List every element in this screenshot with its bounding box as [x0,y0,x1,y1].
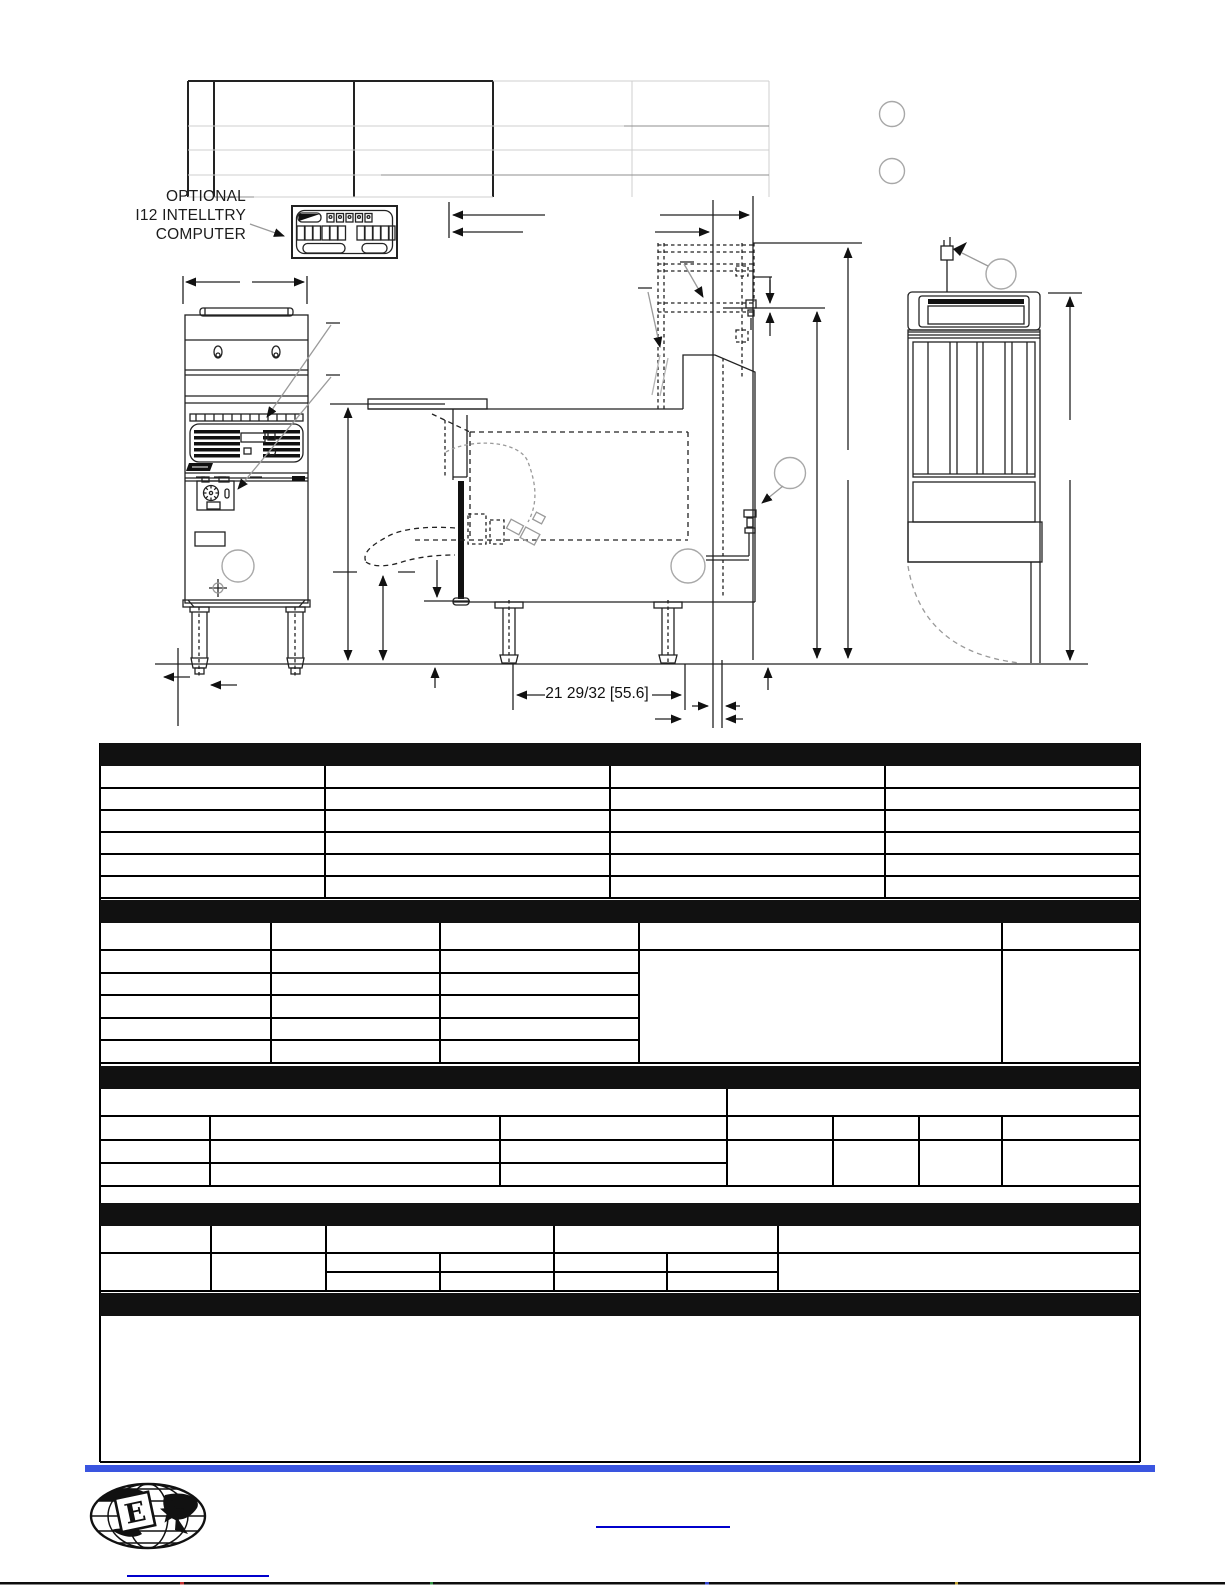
side-view-drawing [330,196,862,728]
empty-callout-circle-icon [222,550,254,582]
optional-computer-label-line1: OPTIONAL [118,187,246,206]
section-header-bar [100,900,1140,923]
section-header-bar [100,1203,1140,1226]
globe-logo-icon: E [91,1484,205,1548]
spec-sheet-page: E OPTIONAL I12 INTELLTRY COMPUTER 21 29/… [0,0,1225,1585]
center-hyperlink[interactable] [596,1513,730,1528]
section-header-bar [100,1293,1140,1316]
spec-table-1 [100,766,1140,898]
empty-callout-circle-icon [880,159,905,184]
empty-callout-circle-icon [880,102,905,127]
footer-accent-bar [85,1465,1155,1472]
optional-computer-label-line2: I12 INTELLTRY [118,206,246,225]
top-parts-table [188,81,769,197]
empty-callout-circle-icon [671,549,705,583]
section-header-bar [100,1066,1140,1089]
spec-table-3 [100,1089,1140,1186]
spec-table-2 [100,923,1140,1063]
bottom-left-hyperlink[interactable] [127,1562,269,1577]
front-view-drawing [164,276,340,726]
spec-table-4 [100,1226,1140,1291]
optional-computer-label-line3: COMPUTER [118,225,246,244]
spec-tables [100,743,1140,1462]
section-header-bar [100,743,1140,766]
rear-view-drawing [908,237,1082,663]
base-dimension-label: 21 29/32 [55.6] [532,685,662,703]
optional-computer-panel-drawing [250,206,397,258]
optional-computer-label: OPTIONAL I12 INTELLTRY COMPUTER [118,187,246,244]
empty-callout-circle-icon [986,259,1016,289]
empty-callout-circle-icon [775,458,806,489]
callout-circles [222,102,1016,584]
